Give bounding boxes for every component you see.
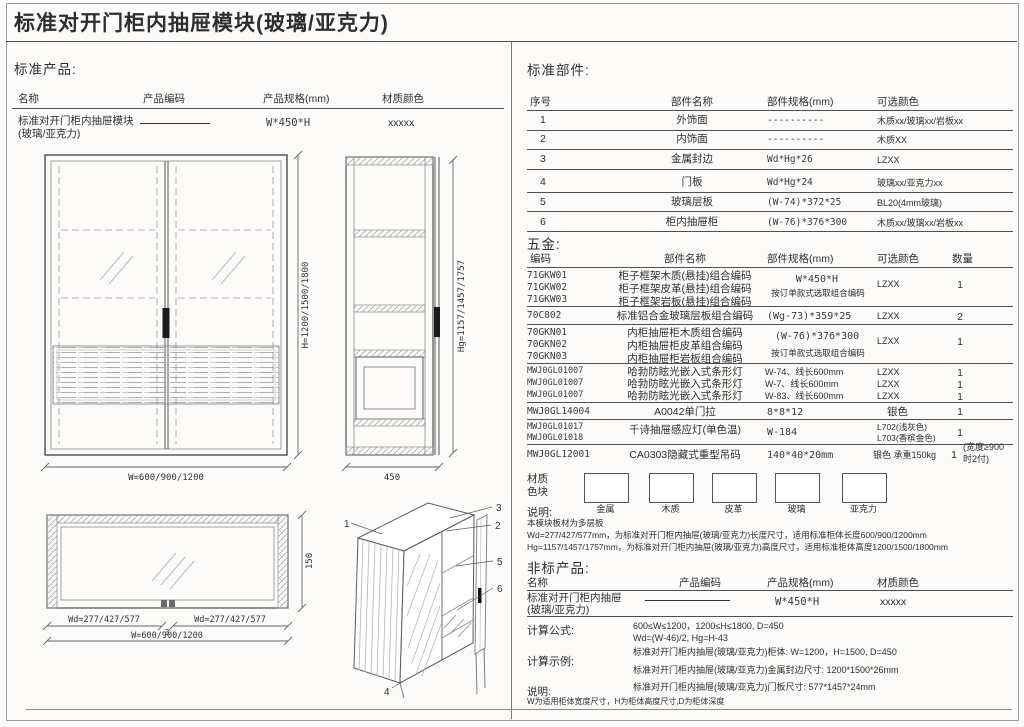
callout-2: 2 xyxy=(495,521,501,532)
swatch-wood xyxy=(649,473,694,503)
front-dim-w: W=600/900/1200 xyxy=(128,473,204,483)
part-no: 2 xyxy=(540,133,546,145)
part-no: 3 xyxy=(540,153,546,165)
hw-code: MWJ0GL01007 xyxy=(527,367,583,377)
col-header-name: 名称 xyxy=(18,93,39,105)
hw-col-color: 可选颜色 xyxy=(877,253,919,265)
hw-col-code: 编码 xyxy=(530,253,551,265)
swatch-acrylic xyxy=(842,473,887,503)
hw-name: 柜子框架木质(悬挂)组合编码 xyxy=(600,270,770,282)
hw-spec-note: 按订单款式选取组合编码 xyxy=(758,349,878,359)
hw-name: A0042单门拉 xyxy=(600,406,770,418)
callout-3: 3 xyxy=(496,503,502,514)
hw-spec: W-83、线长600mm xyxy=(765,391,843,401)
hw-spec: 140*40*20mm xyxy=(767,450,833,462)
formula-label: 计算公式: xyxy=(527,625,574,638)
formula-line: 600≤W≤1200，1200≤H≤1800, D=450 xyxy=(633,621,784,631)
part-color: BL20(4mm玻璃) xyxy=(877,198,942,208)
parts-col-name: 部件名称 xyxy=(622,96,762,108)
callout-1: 1 xyxy=(344,519,350,530)
parts-col-color: 可选颜色 xyxy=(877,96,919,108)
part-name: 柜内抽屉柜 xyxy=(622,216,762,228)
example-line: 标准对开门柜内抽屉(玻璃/亚克力)金属封边尺寸: 1200*1500*26mm xyxy=(633,665,899,675)
parts-rule xyxy=(527,192,1013,193)
hw-color: 银色 xyxy=(887,406,908,418)
hw-col-qty: 数量 xyxy=(952,253,973,265)
table-rule xyxy=(12,108,504,109)
part-spec: (W-76)*376*300 xyxy=(767,218,847,229)
hw-color: LZXX xyxy=(877,279,900,289)
part-spec: ---------- xyxy=(767,116,824,127)
hw-code: 70C802 xyxy=(527,311,561,322)
parts-rule xyxy=(527,130,1013,131)
part-no: 6 xyxy=(540,216,546,228)
hw-color: LZXX xyxy=(877,367,900,377)
hw-code: 70GKN02 xyxy=(527,340,567,351)
part-no: 4 xyxy=(540,176,546,188)
door-handle xyxy=(163,308,170,338)
product-color: xxxxx xyxy=(388,117,414,129)
side-view-drawing: Hg=1157/1457/1757 450 xyxy=(338,150,473,485)
drawer-box xyxy=(356,357,423,419)
materials-label-1: 材质 xyxy=(527,473,548,485)
notes-line: 本模块板材为多层板 xyxy=(527,519,604,529)
parts-rule xyxy=(527,211,1013,212)
part-spec: Wd*Hg*24 xyxy=(767,178,813,189)
ns-rule xyxy=(527,616,1013,617)
hw-name: 哈勃防眩光嵌入式条形灯 xyxy=(600,366,770,378)
side-dim-w: 450 xyxy=(384,473,400,483)
ns-row-color: xxxxx xyxy=(880,596,906,608)
notes-line: Wd=277/427/577mm，为标准对开门柜内抽屉(玻璃/亚克力)长度尺寸，… xyxy=(527,531,927,541)
door-handle-side xyxy=(434,307,440,337)
part-name: 外饰面 xyxy=(622,114,762,126)
hw-spec: W-74、线长600mm xyxy=(765,367,843,377)
swatch-label: 木质 xyxy=(649,504,692,514)
hw-qty: 1 xyxy=(946,449,962,461)
hw-color: L702(浅灰色) xyxy=(877,423,927,433)
hw-color: 银色 承重150kg xyxy=(873,450,936,460)
standard-parts-heading: 标准部件: xyxy=(527,63,590,79)
ns-code-dash xyxy=(645,600,730,601)
hw-qty-note: (宽度≥900 xyxy=(963,442,1004,452)
hw-code: MWJ0GL14004 xyxy=(527,407,590,418)
callout-5: 5 xyxy=(497,557,503,568)
swatch-label: 玻璃 xyxy=(775,504,818,514)
notes-line: Hg=1157/1457/1757mm，为标准对开门柜内抽屉(玻璃/亚克力)高度… xyxy=(527,543,948,553)
ns-col-code: 产品编码 xyxy=(640,577,760,589)
front-dim-h: H=1200/1500/1800 xyxy=(301,262,311,349)
swatch-label: 皮革 xyxy=(712,504,755,514)
product-name-2: (玻璃/亚克力) xyxy=(18,128,80,140)
hw-code: MWJ0GL01007 xyxy=(527,391,583,401)
part-color: LZXX xyxy=(877,155,900,165)
product-code-dash xyxy=(140,123,210,124)
hw-rule xyxy=(527,267,1013,268)
hw-color: L703(香槟金色) xyxy=(877,434,936,444)
hw-name: CA0303隐藏式重型吊码 xyxy=(600,449,770,461)
iso-view-drawing: 1 3 2 5 6 4 xyxy=(330,498,520,723)
swatch-glass xyxy=(775,473,820,503)
hw-code: 71GKW01 xyxy=(527,271,567,282)
part-color: 木质XX xyxy=(877,135,907,145)
part-name: 门板 xyxy=(622,176,762,188)
example-label: 计算示例: xyxy=(527,656,574,669)
hw-qty: 1 xyxy=(950,427,970,439)
side-dim-h: Hg=1157/1457/1757 xyxy=(457,260,467,352)
part-spec: ---------- xyxy=(767,135,824,146)
nonstandard-heading: 非标产品: xyxy=(527,561,590,577)
hw-name: 千诗抽屉感应灯(单色温) xyxy=(600,424,770,436)
part-name: 金属封边 xyxy=(622,153,762,165)
hw-name: 内柜抽屉柜木质组合编码 xyxy=(600,327,770,339)
hw-spec: W*450*H xyxy=(762,274,872,286)
glass-marks xyxy=(100,252,245,284)
swatch-label: 金属 xyxy=(584,504,627,514)
col-header-spec: 产品规格(mm) xyxy=(263,93,330,105)
hw-spec: W-7、线长600mm xyxy=(765,379,838,389)
front-view-drawing: H=1200/1500/1800 W=600/900/1200 xyxy=(40,150,315,485)
hw-spec: (Wg-73)*359*25 xyxy=(767,311,851,323)
hw-qty: 1 xyxy=(950,336,970,348)
hardware-heading: 五金: xyxy=(527,237,561,253)
hw-color: LZXX xyxy=(877,336,900,346)
ns-row-spec: W*450*H xyxy=(775,596,819,608)
hw-color: LZXX xyxy=(877,391,900,401)
shelf-2 xyxy=(354,305,425,312)
hw-code: MWJ0GL01018 xyxy=(527,434,583,444)
hw-spec: 8*8*12 xyxy=(767,407,803,419)
ns-note: W为适用柜体宽度尺寸，H为柜体高度尺寸,D为柜体深度 xyxy=(527,697,724,706)
hw-rule xyxy=(527,402,1013,403)
parts-col-spec: 部件规格(mm) xyxy=(767,96,834,108)
hw-code: 71GKW02 xyxy=(527,283,567,294)
ns-row-name-2: (玻璃/亚克力) xyxy=(527,604,589,616)
part-name: 玻璃层板 xyxy=(622,196,762,208)
part-spec: Wd*Hg*26 xyxy=(767,155,813,166)
formula-line: Wd=(W-46)/2, Hg=H-43 xyxy=(633,633,728,643)
plan-dim-wd-left: Wd=277/427/577 xyxy=(68,615,140,625)
hw-name: 柜子框架皮革(悬挂)组合编码 xyxy=(600,283,770,295)
parts-rule xyxy=(527,110,1013,111)
hw-rule xyxy=(527,306,1013,307)
materials-label-2: 色块 xyxy=(527,486,548,498)
parts-col-no: 序号 xyxy=(530,96,551,108)
plan-dim-wd-right: Wd=277/427/577 xyxy=(194,615,266,625)
callout-4: 4 xyxy=(384,687,390,698)
dim-width xyxy=(41,463,291,471)
hw-code: 70GKN01 xyxy=(527,328,567,339)
hw-name: 标准铝合金玻璃层板组合编码 xyxy=(600,310,770,322)
product-spec: W*450*H xyxy=(266,117,310,129)
part-no: 5 xyxy=(540,196,546,208)
product-name: 标准对开门柜内抽屉模块 xyxy=(18,115,134,127)
drawer-band xyxy=(53,346,279,404)
parts-rule xyxy=(527,169,1013,170)
col-header-code: 产品编码 xyxy=(143,93,185,105)
ns-col-spec: 产品规格(mm) xyxy=(767,577,834,589)
callout-6: 6 xyxy=(497,584,503,595)
hw-rule xyxy=(527,363,1013,364)
hw-code: 71GKW03 xyxy=(527,295,567,306)
hw-qty: 1 xyxy=(950,367,970,379)
hw-col-name: 部件名称 xyxy=(600,253,770,265)
part-color: 木质xx/玻璃xx/岩板xx xyxy=(877,116,963,126)
hw-spec: (W-76)*376*300 xyxy=(762,331,872,343)
ns-col-name: 名称 xyxy=(527,577,548,589)
plan-dim-w: W=600/900/1200 xyxy=(131,631,203,641)
hw-code: 70GKN03 xyxy=(527,352,567,363)
hw-qty-note: 时2付) xyxy=(963,454,989,464)
hw-code: MWJ0GL12001 xyxy=(527,450,590,461)
hw-qty: 2 xyxy=(950,311,970,323)
example-line: 标准对开门柜内抽屉(玻璃/亚克力)门板尺寸: 577*1457*24mm xyxy=(633,682,876,692)
hw-name: 哈勃防眩光嵌入式条形灯 xyxy=(600,390,770,402)
part-color: 玻璃xx/亚克力xx xyxy=(877,178,943,188)
hw-rule xyxy=(527,324,1013,325)
spec-sheet: 标准对开门柜内抽屉模块(玻璃/亚克力) 标准产品: 名称 产品编码 产品规格(m… xyxy=(0,0,1024,727)
plan-view-drawing: 150 Wd=277/427/577 3 Wd=277/427/577 W=60… xyxy=(40,505,320,645)
plan-dim-h: 150 xyxy=(305,553,315,569)
hw-qty: 1 xyxy=(950,406,970,418)
ns-col-color: 材质颜色 xyxy=(877,577,919,589)
hw-rule xyxy=(527,419,1013,420)
page-title: 标准对开门柜内抽屉模块(玻璃/亚克力) xyxy=(14,12,389,36)
example-line: 标准对开门柜内抽屉(玻璃/亚克力)柜体: W=1200，H=1500, D=45… xyxy=(633,647,897,657)
hw-rule xyxy=(527,444,1013,445)
hw-name: 哈勃防眩光嵌入式条形灯 xyxy=(600,378,770,390)
parts-rule xyxy=(527,149,1013,150)
hw-spec-note: 按订单款式选取组合编码 xyxy=(758,289,878,299)
shelf-1 xyxy=(354,230,425,237)
hw-color: LZXX xyxy=(877,379,900,389)
part-spec: (W-74)*372*25 xyxy=(767,198,841,209)
hw-col-spec: 部件规格(mm) xyxy=(767,253,834,265)
hw-qty: 1 xyxy=(950,379,970,391)
col-header-color: 材质颜色 xyxy=(382,93,424,105)
part-no: 1 xyxy=(540,114,546,126)
hw-code: MWJ0GL01007 xyxy=(527,379,583,389)
part-color: 木质xx/玻璃xx/岩板xx xyxy=(877,218,963,228)
parts-rule xyxy=(527,231,1013,232)
hw-code: MWJ0GL01017 xyxy=(527,423,583,433)
hw-color: LZXX xyxy=(877,311,900,321)
part-name: 内饰面 xyxy=(622,133,762,145)
ns-row-name: 标准对开门柜内抽屉 xyxy=(527,592,622,604)
hw-name: 内柜抽屉柜皮革组合编码 xyxy=(600,340,770,352)
swatch-label: 亚克力 xyxy=(842,504,885,514)
hw-qty: 1 xyxy=(950,279,970,291)
standard-products-heading: 标准产品: xyxy=(14,62,77,78)
hw-spec: W-184 xyxy=(767,427,797,439)
swatch-metal xyxy=(584,473,629,503)
ns-rule xyxy=(527,590,1013,591)
swatch-leather xyxy=(712,473,757,503)
